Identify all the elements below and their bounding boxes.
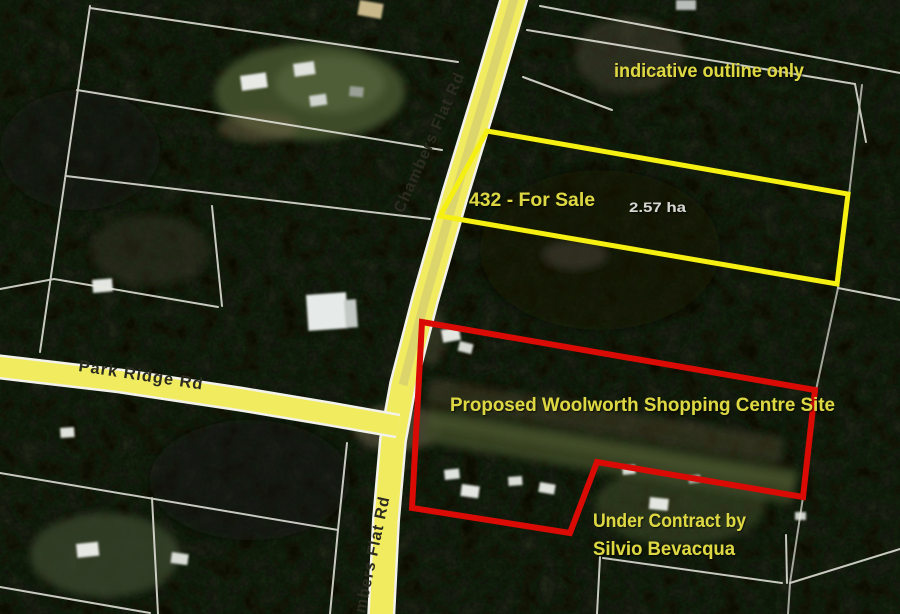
under-contract-label-line1: Under Contract by [593,511,746,532]
aerial-map: Park Ridge Rd Chambers Flat Rd Chambers … [0,0,900,614]
parcel-area-label: 2.57 ha [629,200,687,215]
proposed-site-label: Proposed Woolworth Shopping Centre Site [450,395,835,416]
for-sale-label: 432 - For Sale [469,189,595,211]
under-contract-label-line2: Silvio Bevacqua [593,539,735,560]
indicative-outline-label: indicative outline only [614,61,804,82]
